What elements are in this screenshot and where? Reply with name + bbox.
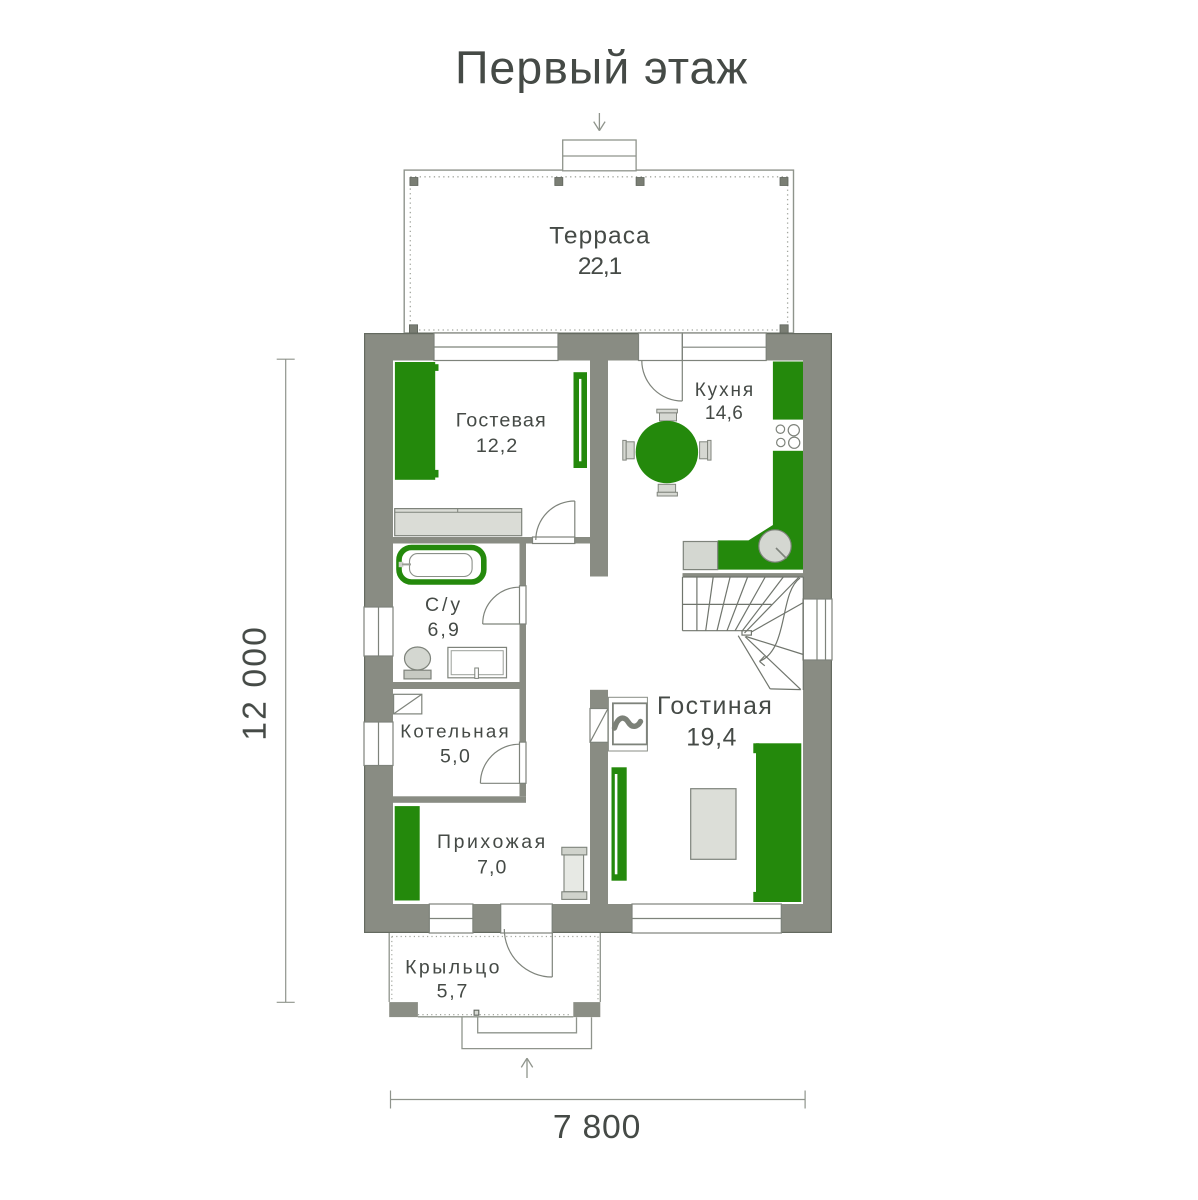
- svg-text:12 000: 12 000: [236, 625, 274, 741]
- svg-text:22,1: 22,1: [578, 253, 622, 280]
- svg-text:7 800: 7 800: [553, 1108, 641, 1146]
- svg-text:14,6: 14,6: [705, 403, 743, 424]
- svg-text:6,9: 6,9: [427, 619, 460, 641]
- svg-text:Терраса: Терраса: [549, 223, 651, 250]
- svg-text:Гостиная: Гостиная: [657, 693, 773, 720]
- svg-text:Крыльцо: Крыльцо: [405, 957, 502, 979]
- svg-text:Первый этаж: Первый этаж: [455, 41, 748, 93]
- svg-text:19,4: 19,4: [686, 725, 737, 752]
- svg-text:5,0: 5,0: [440, 746, 471, 768]
- svg-text:5,7: 5,7: [437, 981, 470, 1003]
- svg-text:12,2: 12,2: [476, 435, 518, 457]
- svg-text:Гостевая: Гостевая: [456, 409, 547, 431]
- svg-text:Кухня: Кухня: [695, 380, 755, 401]
- svg-text:Прихожая: Прихожая: [437, 831, 548, 853]
- svg-text:7,0: 7,0: [477, 856, 507, 878]
- svg-text:Котельная: Котельная: [400, 720, 511, 741]
- svg-text:С/у: С/у: [425, 594, 463, 616]
